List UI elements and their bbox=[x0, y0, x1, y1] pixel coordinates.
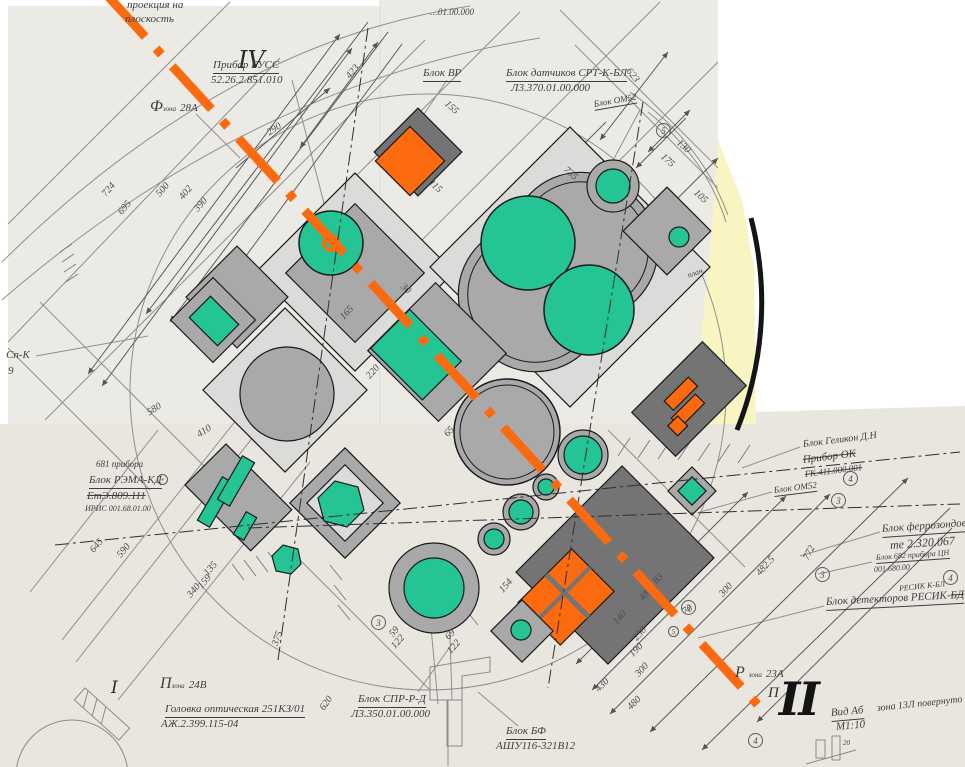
donut-d-core bbox=[564, 436, 602, 474]
circled-number: 3 bbox=[371, 615, 386, 630]
donut-a-core bbox=[484, 529, 504, 549]
zone-marker-p: Пзона 24В bbox=[160, 675, 206, 693]
projection-note-line1: проекция на bbox=[127, 0, 183, 12]
label-golovka: Головка оптическая 251КЗ/01 bbox=[165, 704, 305, 718]
circled-number: 4 bbox=[843, 471, 858, 486]
label-golovka-num: АЖ.2.399.115-04 bbox=[161, 719, 238, 731]
label-pribor-buss: Прибор БУСС bbox=[213, 60, 279, 74]
label-68-pribora: 681 прибора bbox=[96, 460, 143, 469]
label-cut-number: …01.00.000 bbox=[430, 8, 474, 17]
view-marker-ii: ПII bbox=[768, 672, 818, 726]
circled-number: 3 bbox=[831, 493, 846, 508]
drawing-canvas bbox=[0, 0, 965, 767]
donut-b-core bbox=[509, 500, 533, 524]
label-blok-rema: Блок РЭМА-КД bbox=[89, 475, 162, 489]
lens-core bbox=[404, 558, 464, 618]
donut-core bbox=[596, 169, 630, 203]
label-blok-spr: Блок СПР-Р-Д bbox=[358, 694, 426, 708]
label-blok-vr: Блок ВР bbox=[423, 68, 461, 82]
circled-number: 5 bbox=[668, 626, 679, 637]
diamond-bottom-eye bbox=[511, 620, 531, 640]
projection-note-line2: плоскость bbox=[125, 14, 174, 26]
label-sp-k-num: 9 bbox=[8, 366, 14, 378]
om52-eye bbox=[669, 227, 689, 247]
label-dim-20: 20 bbox=[843, 740, 850, 747]
label-blok-datchikov: Блок датчиков СРТ-К-БЛ bbox=[506, 68, 627, 82]
rema-plus-mark: + bbox=[157, 474, 168, 485]
gray-drum bbox=[240, 347, 334, 441]
label-rema-num: ЕтЭ.809.111 bbox=[87, 491, 146, 503]
circled-number: 4 bbox=[748, 733, 763, 748]
label-blok-spr-num: Л3.350.01.00.000 bbox=[351, 709, 430, 721]
label-sp-k: Сп-К bbox=[6, 350, 30, 362]
circled-number: 4 bbox=[943, 570, 958, 585]
view-marker-i: I bbox=[111, 678, 118, 698]
circled-number: 3 bbox=[815, 567, 830, 582]
label-pribor-buss-num: 52.26.2.851.010 bbox=[211, 75, 283, 87]
label-rema-num2: ИРИС 001.68.01.00 bbox=[85, 505, 151, 513]
label-blok-bf-num: АШУ116-321В12 bbox=[496, 741, 575, 753]
scanned-engineering-drawing: проекция на плоскость IV Прибор БУСС 52.… bbox=[0, 0, 965, 767]
zone-marker-f: Фзона 28А bbox=[150, 98, 198, 116]
label-blok-bf: Блок БФ bbox=[506, 726, 546, 740]
circled-number: 5 bbox=[656, 123, 671, 138]
paper-sheets bbox=[0, 0, 965, 767]
donut-c-core bbox=[538, 479, 554, 495]
srtk-sensor-2 bbox=[544, 265, 634, 355]
label-blok-datchikov-num: Л3.370.01.00.000 bbox=[511, 83, 590, 95]
circled-number: 3 bbox=[681, 600, 696, 615]
